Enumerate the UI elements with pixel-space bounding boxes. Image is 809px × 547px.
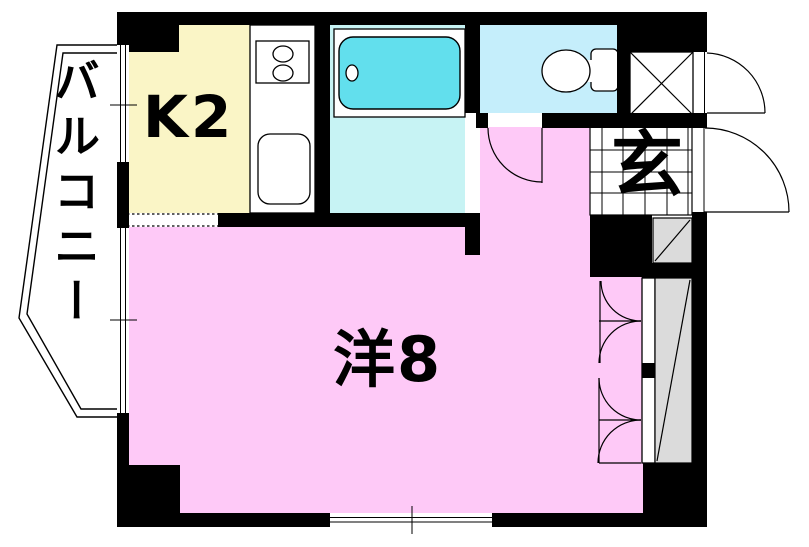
sink xyxy=(258,134,310,204)
wall xyxy=(218,213,480,227)
floorplan: バルコニー K2 洋8 玄 xyxy=(0,0,809,547)
bathtub-unit xyxy=(334,29,465,117)
wall xyxy=(476,113,488,128)
wall xyxy=(617,25,630,115)
stove-burner-icon xyxy=(273,65,293,81)
wall xyxy=(643,463,707,527)
wall xyxy=(117,162,129,228)
toilet-fixture xyxy=(542,49,618,92)
wall xyxy=(642,363,655,378)
kitchen-counter xyxy=(250,25,315,213)
wall xyxy=(642,263,693,278)
wall xyxy=(465,25,480,113)
bathtub-drain-icon xyxy=(346,65,358,81)
balcony-label: バルコニー xyxy=(51,57,97,332)
floorplan-drawing xyxy=(0,0,809,547)
toilet-tank xyxy=(591,49,618,91)
wall xyxy=(465,213,480,255)
wall xyxy=(117,25,129,45)
meter-box xyxy=(630,52,693,115)
wall xyxy=(315,25,330,213)
kitchen-label: K2 xyxy=(143,88,234,146)
entrance-label: 玄 xyxy=(611,129,683,201)
main-room-label: 洋8 xyxy=(333,329,442,391)
toilet-bowl xyxy=(542,50,590,92)
stove-burner-icon xyxy=(273,46,293,62)
window-opening xyxy=(117,45,129,162)
wall xyxy=(617,12,707,52)
shoe-storage xyxy=(653,218,692,263)
window-opening xyxy=(330,513,492,527)
